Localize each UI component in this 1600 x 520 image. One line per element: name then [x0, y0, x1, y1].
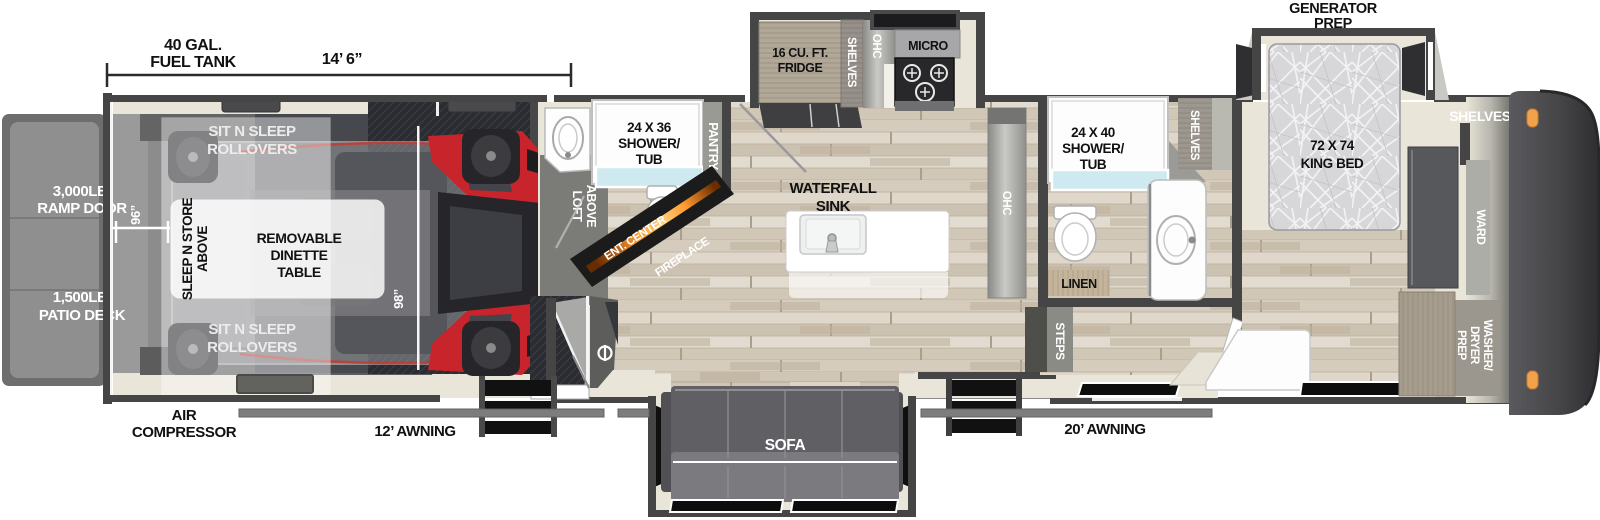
svg-text:PANTRY: PANTRY	[706, 122, 720, 171]
svg-text:WATERFALL: WATERFALL	[790, 180, 877, 197]
svg-text:72 X 74: 72 X 74	[1310, 138, 1355, 153]
svg-text:SHOWER/: SHOWER/	[618, 136, 680, 151]
svg-text:KING BED: KING BED	[1301, 156, 1364, 171]
svg-text:SHELVES: SHELVES	[1188, 110, 1200, 161]
svg-text:12’ AWNING: 12’ AWNING	[374, 423, 455, 440]
svg-text:TUB: TUB	[1080, 157, 1107, 172]
svg-text:COMPRESSOR: COMPRESSOR	[132, 424, 237, 441]
svg-text:DINETTE: DINETTE	[270, 247, 327, 263]
svg-text:TABLE: TABLE	[277, 264, 321, 280]
svg-text:1,500LB.: 1,500LB.	[53, 289, 112, 306]
svg-text:PREP: PREP	[1455, 330, 1467, 360]
svg-text:24 X 40: 24 X 40	[1071, 125, 1115, 140]
svg-text:24 X 36: 24 X 36	[627, 120, 672, 135]
svg-text:SHELVES: SHELVES	[1449, 108, 1511, 124]
svg-text:16 CU. FT.: 16 CU. FT.	[772, 46, 828, 60]
svg-text:FRIDGE: FRIDGE	[778, 61, 823, 75]
svg-text:OHC: OHC	[870, 34, 882, 58]
svg-text:DRYER: DRYER	[1468, 326, 1480, 365]
svg-text:WARD: WARD	[1474, 209, 1488, 245]
svg-text:STEPS: STEPS	[1053, 322, 1067, 360]
svg-text:ABOVE: ABOVE	[584, 185, 598, 228]
svg-text:SINK: SINK	[816, 198, 851, 215]
svg-text:SHOWER/: SHOWER/	[1062, 141, 1124, 156]
svg-text:96”: 96”	[128, 205, 143, 225]
svg-text:FUEL TANK: FUEL TANK	[150, 54, 236, 71]
svg-text:OHC: OHC	[1000, 191, 1012, 215]
svg-text:ROLLOVERS: ROLLOVERS	[207, 141, 297, 158]
svg-text:PREP: PREP	[1314, 16, 1353, 32]
svg-text:AIR: AIR	[172, 407, 197, 424]
svg-text:SIT N SLEEP: SIT N SLEEP	[208, 321, 296, 338]
svg-text:98”: 98”	[391, 289, 406, 309]
svg-text:GENERATOR: GENERATOR	[1289, 1, 1378, 17]
svg-text:3,000LB.: 3,000LB.	[53, 183, 112, 200]
svg-text:SOFA: SOFA	[765, 437, 806, 454]
svg-text:20’ AWNING: 20’ AWNING	[1064, 421, 1145, 438]
svg-text:SIT N SLEEP: SIT N SLEEP	[208, 123, 296, 140]
svg-text:REMOVABLE: REMOVABLE	[257, 230, 342, 246]
svg-text:ROLLOVERS: ROLLOVERS	[207, 339, 297, 356]
svg-text:40 GAL.: 40 GAL.	[164, 37, 222, 54]
svg-text:MICRO: MICRO	[908, 39, 948, 53]
svg-text:14’ 6”: 14’ 6”	[322, 51, 362, 68]
svg-text:LINEN: LINEN	[1061, 277, 1097, 291]
svg-text:WASHER/: WASHER/	[1481, 320, 1493, 372]
svg-text:SHELVES: SHELVES	[845, 37, 857, 88]
svg-text:SLEEP N STORE: SLEEP N STORE	[180, 197, 195, 300]
svg-text:TUB: TUB	[636, 152, 663, 167]
svg-text:ABOVE: ABOVE	[195, 226, 210, 272]
svg-text:RAMP DOOR: RAMP DOOR	[37, 200, 127, 217]
